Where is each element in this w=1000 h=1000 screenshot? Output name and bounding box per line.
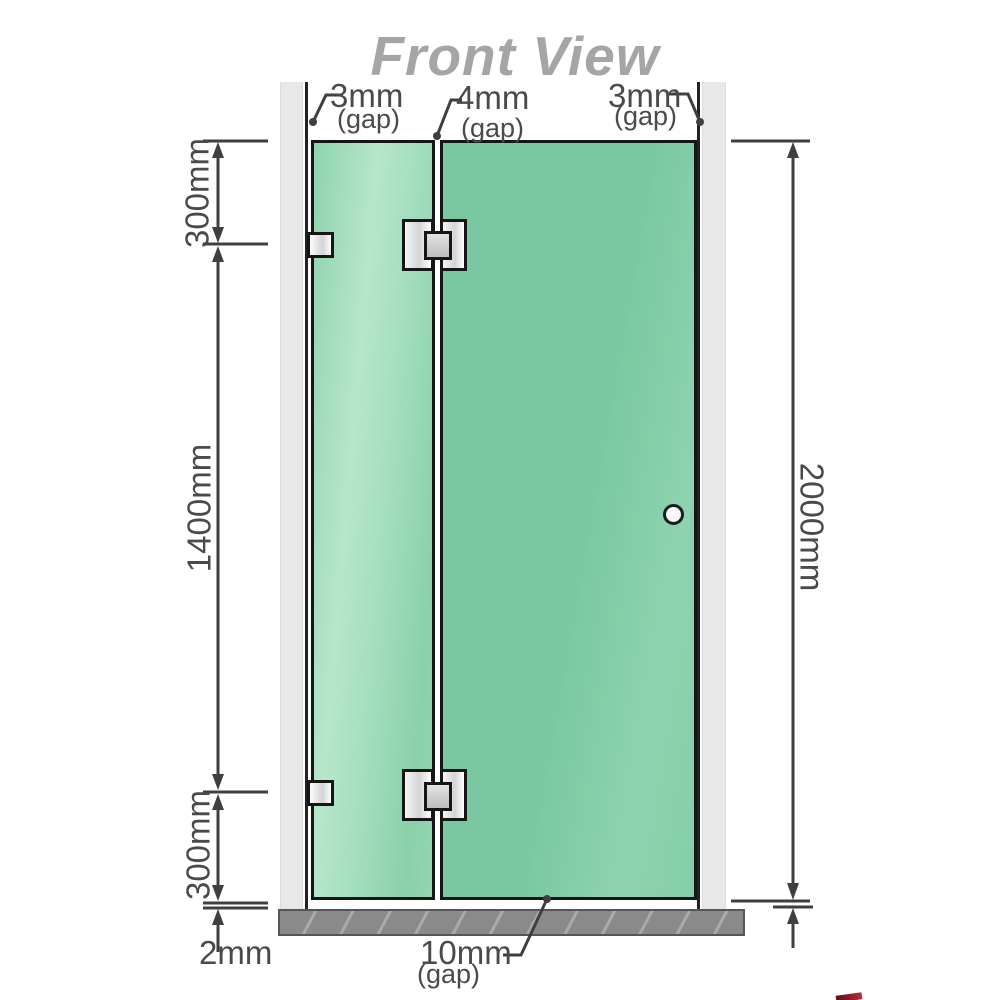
label-height-bottom-section: 300mm <box>182 790 215 900</box>
label-gap-bottom-floor: 2mm <box>199 936 272 969</box>
label-gap-top-left-suffix: (gap) <box>337 106 400 133</box>
label-height-top-section: 300mm <box>181 138 214 248</box>
label-gap-bottom-door-suffix: (gap) <box>417 961 480 988</box>
label-gap-top-middle-suffix: (gap) <box>461 115 524 142</box>
label-gap-top-right-suffix: (gap) <box>614 103 677 130</box>
dimension-lines <box>0 0 1000 1000</box>
label-height-middle-section: 1400mm <box>183 444 216 572</box>
label-height-overall: 2000mm <box>796 463 829 591</box>
label-gap-top-middle: 4mm <box>456 81 529 114</box>
front-view-diagram: Front View <box>0 0 1000 1000</box>
leader-lines <box>309 94 704 955</box>
